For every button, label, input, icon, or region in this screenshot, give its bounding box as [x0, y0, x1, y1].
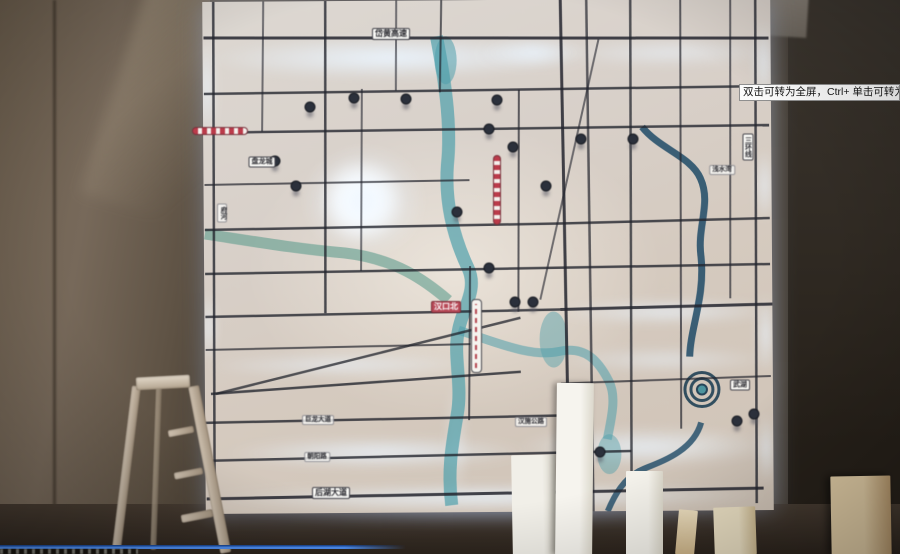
ladder-step — [174, 467, 204, 479]
foam-block — [626, 471, 663, 554]
water-patch — [539, 311, 567, 367]
road-label: 府河 — [217, 204, 227, 223]
road-line — [678, 0, 683, 429]
project-logo-marker — [528, 297, 539, 308]
project-logo-marker — [305, 102, 316, 113]
road-line — [261, 2, 264, 132]
project-logo-marker — [492, 95, 503, 106]
road-line — [753, 0, 759, 503]
road-label: 后湖大道 — [312, 487, 350, 499]
road-line — [206, 344, 471, 350]
project-logo-marker — [595, 447, 606, 458]
ladder-top-cap — [136, 375, 191, 391]
road-label: 岱黄高速 — [372, 28, 410, 40]
road-line — [728, 0, 732, 298]
road-label: 浅水湾 — [709, 165, 735, 175]
project-logo-marker — [452, 207, 463, 218]
project-logo-marker — [628, 134, 639, 145]
road-line — [517, 90, 521, 312]
fullscreen-tooltip: 双击可转为全屏，Ctrl+ 单击可转为 — [739, 84, 900, 101]
ladder-step — [181, 509, 214, 523]
foam-block — [675, 509, 698, 554]
project-logo-marker — [484, 263, 495, 274]
road-line — [204, 180, 469, 185]
road-label: 武湖 — [730, 380, 750, 391]
project-logo-marker — [484, 124, 495, 135]
road-label: 巨龙大道 — [302, 415, 334, 425]
map-roads-rivers — [202, 0, 774, 514]
road-line — [360, 89, 363, 271]
project-logo-marker — [349, 93, 360, 104]
road-line — [202, 415, 561, 423]
road-line — [560, 304, 772, 309]
ladder-left-rail — [112, 385, 141, 553]
project-logo-marker — [510, 297, 521, 308]
project-logo-marker — [291, 181, 302, 192]
road-label: 汉口北 — [431, 301, 461, 313]
project-logo-marker — [749, 409, 760, 420]
road-line — [323, 1, 327, 313]
metro-line-symbol — [192, 127, 248, 135]
wall-corner-edge — [53, 0, 56, 554]
metro-line-symbol — [471, 299, 482, 373]
project-logo-marker — [576, 134, 587, 145]
foam-block-tall — [555, 383, 594, 554]
road-label: 三环线 — [743, 134, 754, 161]
foam-block — [713, 506, 757, 554]
road-label: 朝阳路 — [304, 452, 330, 462]
foam-block — [511, 455, 557, 554]
road-line — [205, 223, 560, 229]
ladder-rear-rail — [150, 386, 162, 550]
foam-block — [830, 475, 891, 554]
map-panel — [202, 0, 774, 514]
road-line — [628, 0, 633, 479]
project-logo-marker — [508, 142, 519, 153]
canal-dark — [642, 126, 706, 356]
metro-line-symbol — [493, 155, 501, 225]
spiral-landmark — [697, 384, 707, 394]
project-logo-marker — [401, 94, 412, 105]
video-frame: 岱黄高速三环线浅水湾府河盘龙城汉口北武湖巨龙大道朝阳路后湖大道汉施公路 双击可转… — [0, 0, 900, 554]
bottom-bar-clipped-text — [0, 549, 138, 554]
step-ladder — [112, 372, 227, 554]
road-line — [207, 488, 764, 499]
road-label: 盘龙城 — [249, 157, 276, 168]
road-label: 汉施公路 — [515, 417, 547, 427]
road-line — [560, 218, 770, 223]
road-line — [203, 34, 768, 42]
project-logo-marker — [732, 416, 743, 427]
road-line — [395, 1, 397, 91]
road-line — [205, 309, 560, 316]
road-line — [204, 86, 769, 94]
project-logo-marker — [541, 181, 552, 192]
ladder-step — [168, 426, 195, 438]
